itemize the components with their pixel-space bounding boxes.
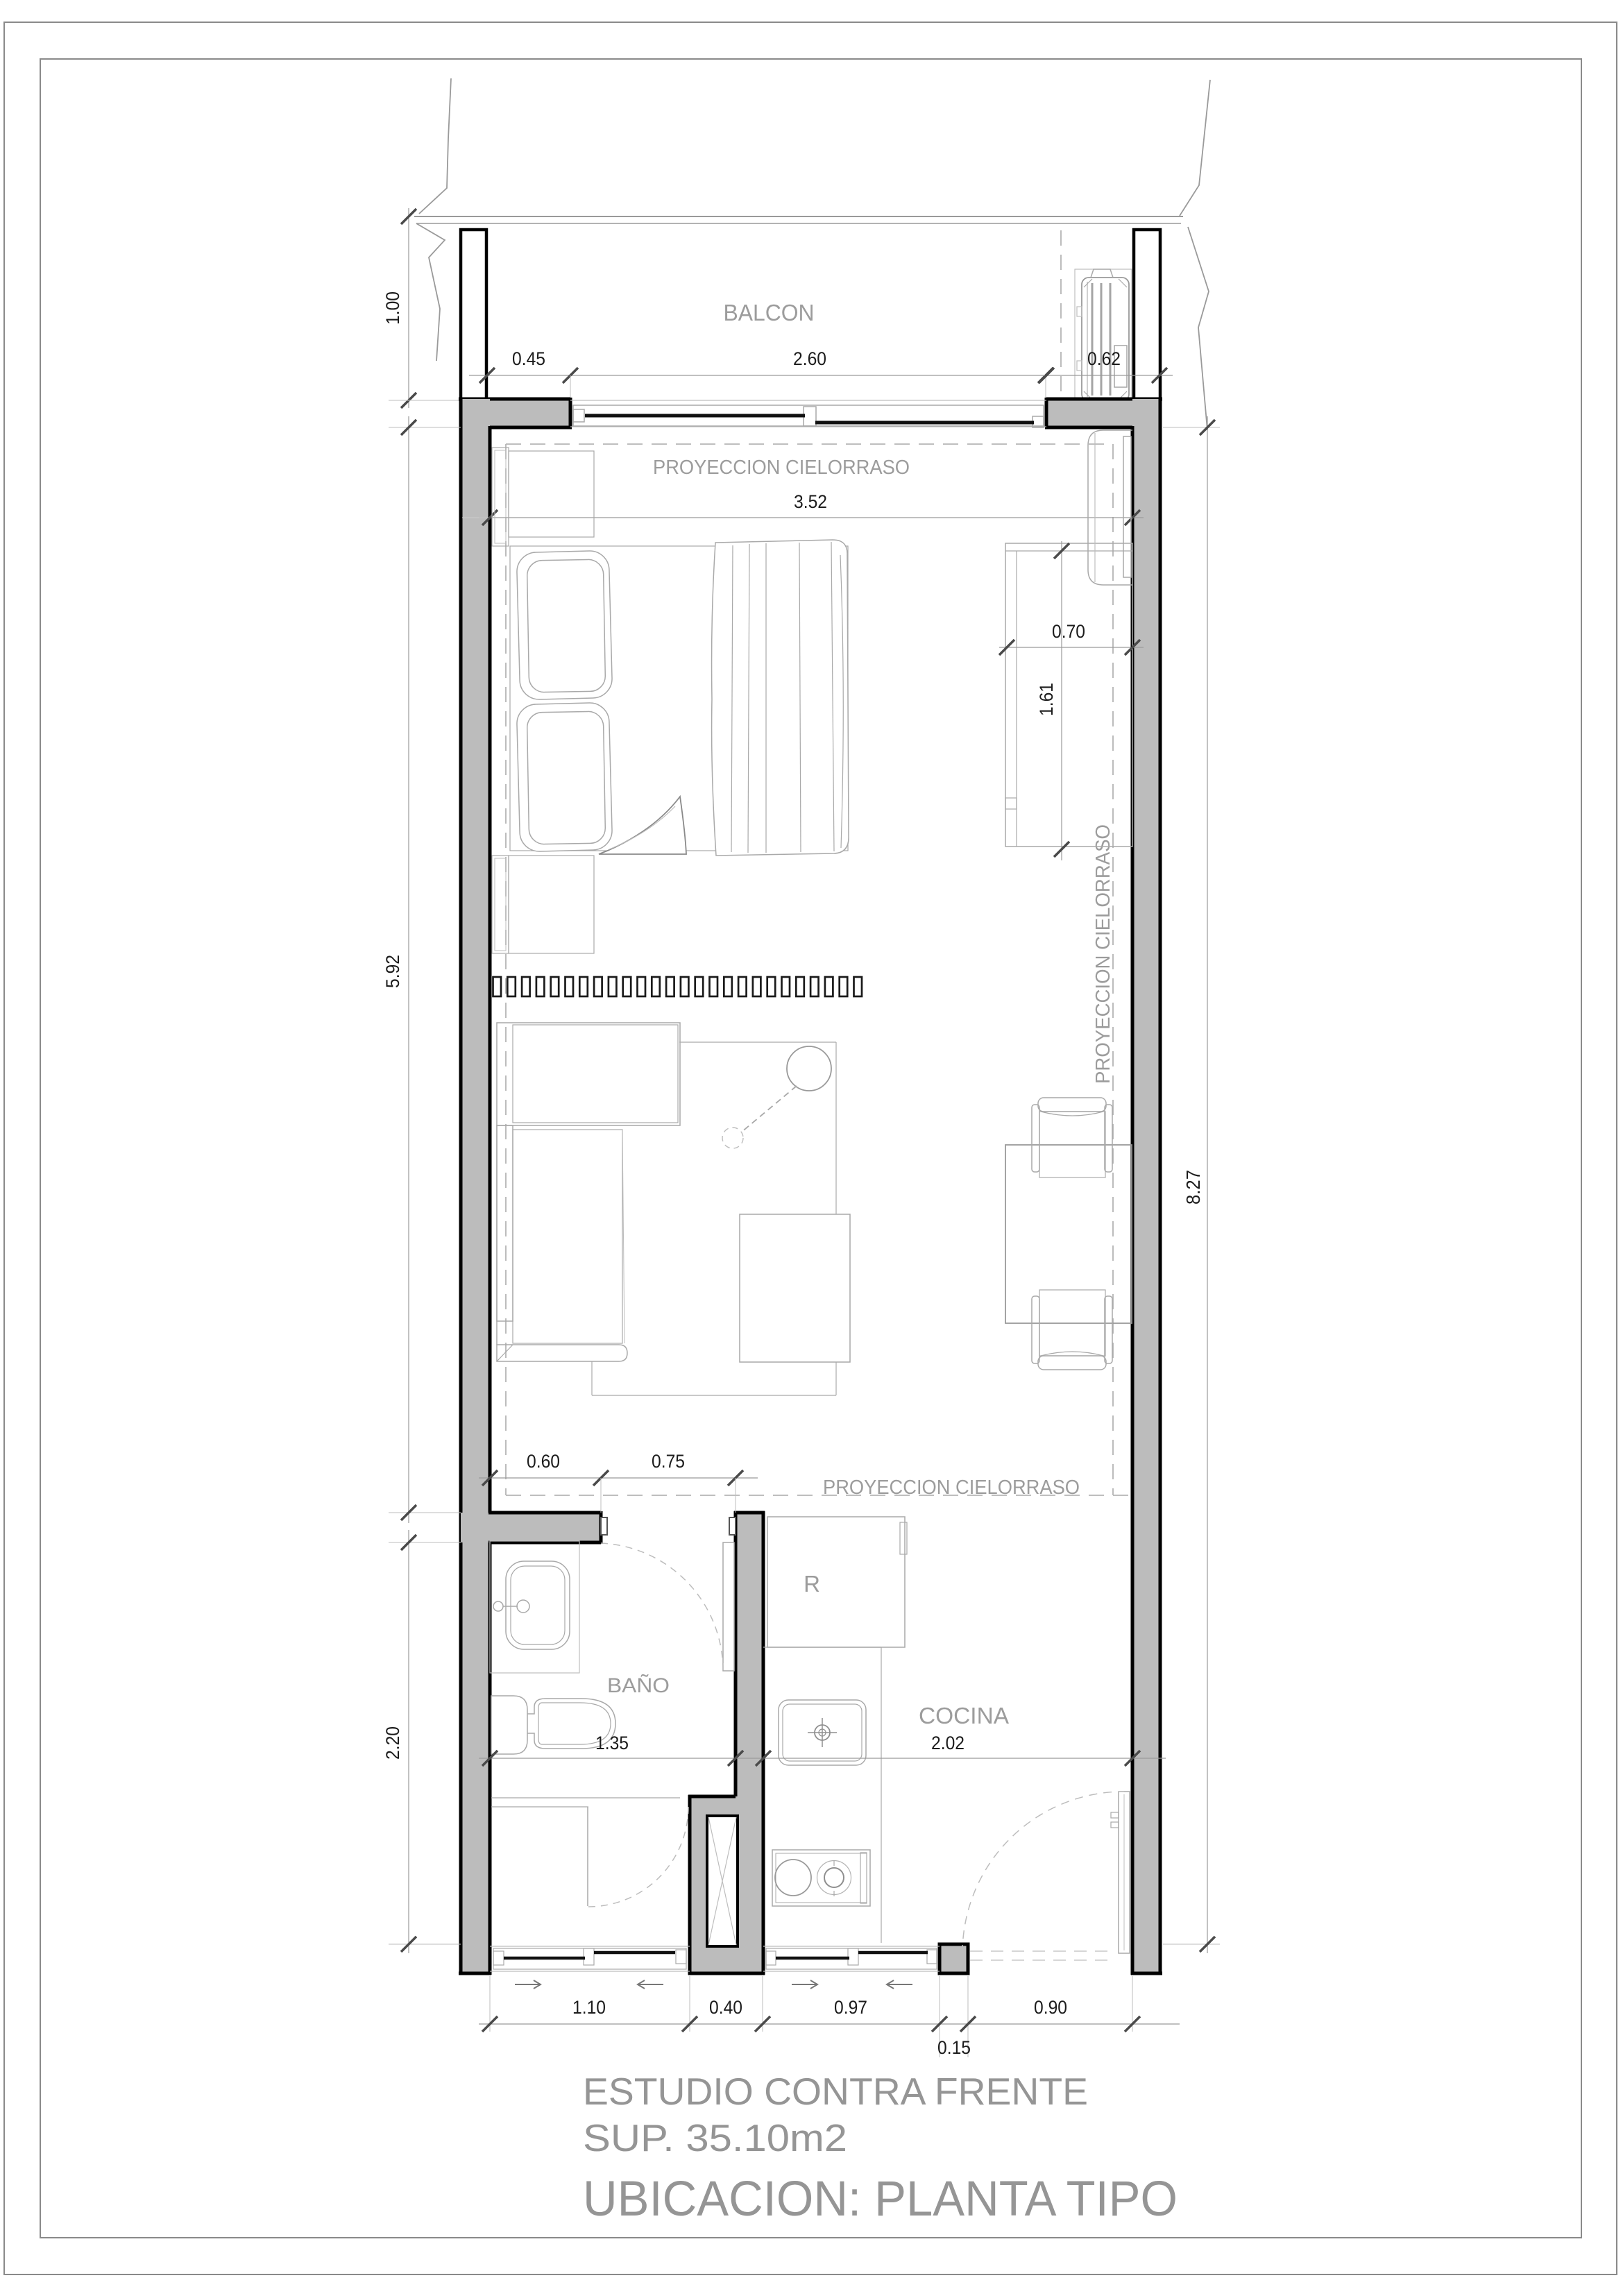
svg-text:PROYECCION CIELORRASO: PROYECCION CIELORRASO xyxy=(653,457,910,479)
svg-text:0.60: 0.60 xyxy=(527,1451,560,1472)
svg-text:PROYECCION CIELORRASO: PROYECCION CIELORRASO xyxy=(823,1477,1080,1499)
svg-text:R: R xyxy=(804,1571,820,1597)
svg-text:0.40: 0.40 xyxy=(709,1997,742,2018)
svg-text:BALCON: BALCON xyxy=(724,300,815,325)
svg-text:2.20: 2.20 xyxy=(382,1726,403,1760)
svg-text:8.27: 8.27 xyxy=(1182,1170,1204,1205)
svg-text:1.00: 1.00 xyxy=(382,291,403,325)
svg-text:0.62: 0.62 xyxy=(1087,348,1121,369)
svg-text:3.52: 3.52 xyxy=(794,491,827,512)
svg-text:BAÑO: BAÑO xyxy=(607,1674,670,1697)
svg-text:PROYECCION CIELORRASO: PROYECCION CIELORRASO xyxy=(1092,824,1114,1084)
svg-text:COCINA: COCINA xyxy=(919,1703,1009,1728)
svg-text:1.10: 1.10 xyxy=(572,1997,606,2018)
svg-text:SUP. 35.10m2: SUP. 35.10m2 xyxy=(583,2116,847,2159)
svg-text:0.97: 0.97 xyxy=(834,1997,867,2018)
svg-text:2.02: 2.02 xyxy=(931,1733,965,1753)
svg-text:5.92: 5.92 xyxy=(382,955,403,988)
svg-text:1.61: 1.61 xyxy=(1036,683,1057,716)
svg-text:1.35: 1.35 xyxy=(595,1733,629,1753)
svg-text:0.70: 0.70 xyxy=(1052,621,1085,642)
svg-text:0.75: 0.75 xyxy=(652,1451,685,1472)
svg-text:ESTUDIO CONTRA FRENTE: ESTUDIO CONTRA FRENTE xyxy=(583,2070,1088,2113)
svg-text:UBICACION: PLANTA TIPO: UBICACION: PLANTA TIPO xyxy=(583,2172,1178,2227)
svg-text:0.15: 0.15 xyxy=(937,2037,971,2058)
svg-text:0.90: 0.90 xyxy=(1034,1997,1067,2018)
svg-text:2.60: 2.60 xyxy=(793,348,826,369)
svg-text:0.45: 0.45 xyxy=(512,348,545,369)
